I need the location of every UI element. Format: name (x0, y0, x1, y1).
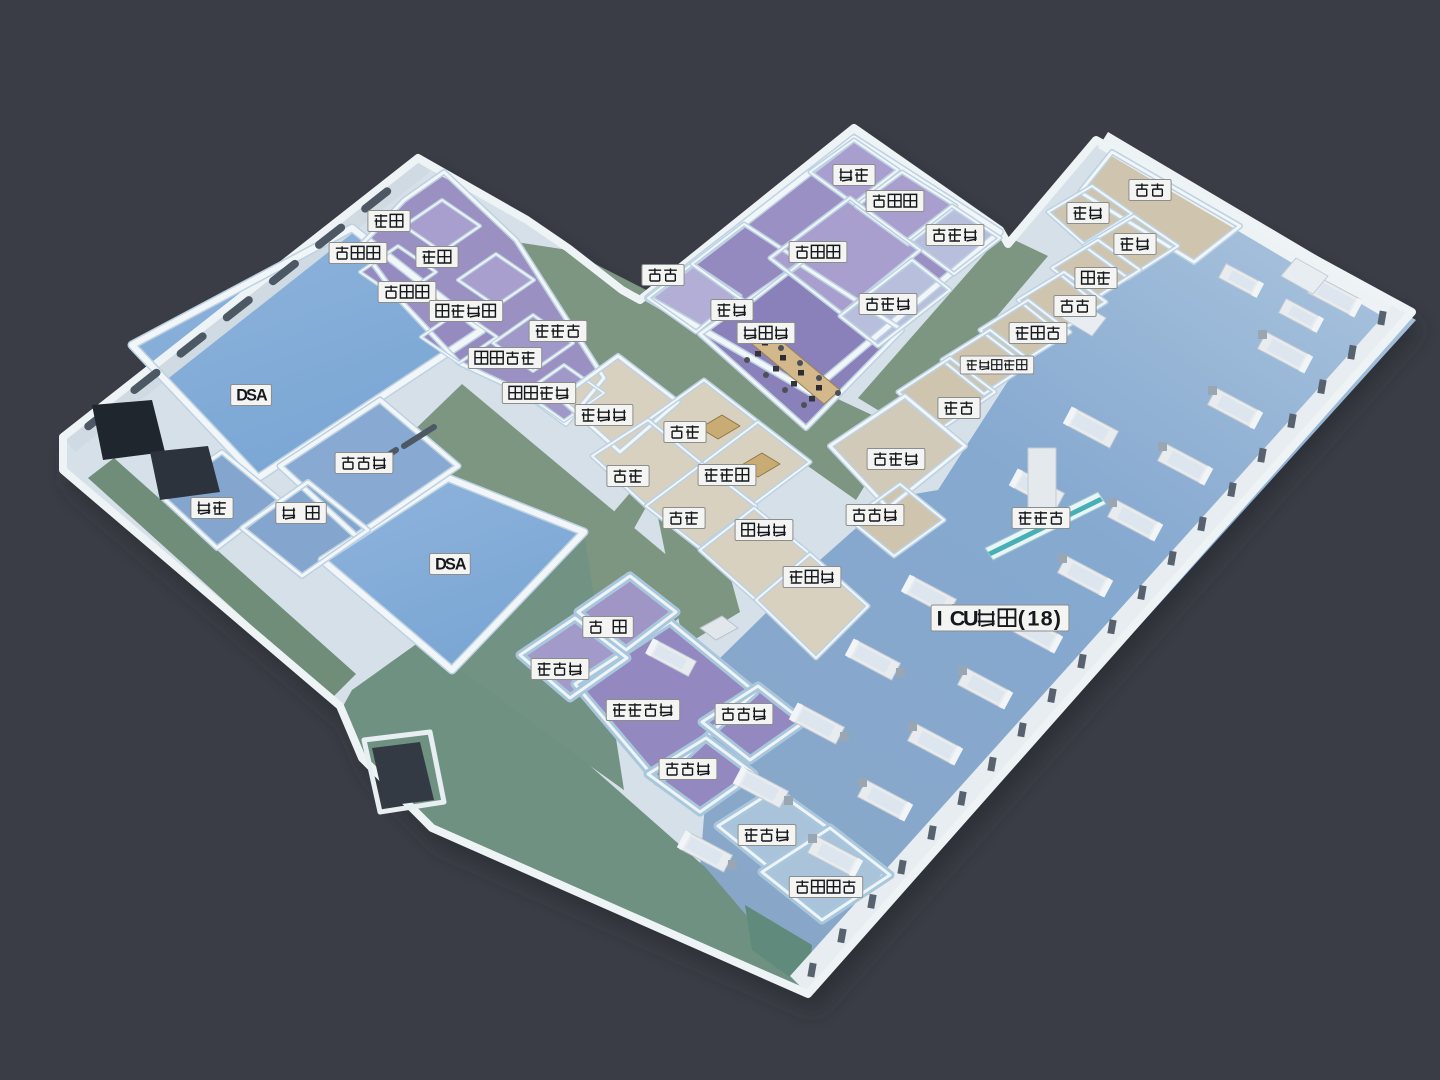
svg-text:1: 1 (1027, 606, 1039, 631)
svg-text:): ) (1054, 606, 1061, 631)
svg-text:(: ( (1018, 606, 1026, 631)
svg-text:A: A (455, 556, 467, 574)
svg-text:8: 8 (1041, 606, 1053, 631)
svg-text:A: A (256, 387, 268, 405)
svg-text:U: U (963, 606, 979, 631)
svg-text:I: I (937, 606, 943, 631)
